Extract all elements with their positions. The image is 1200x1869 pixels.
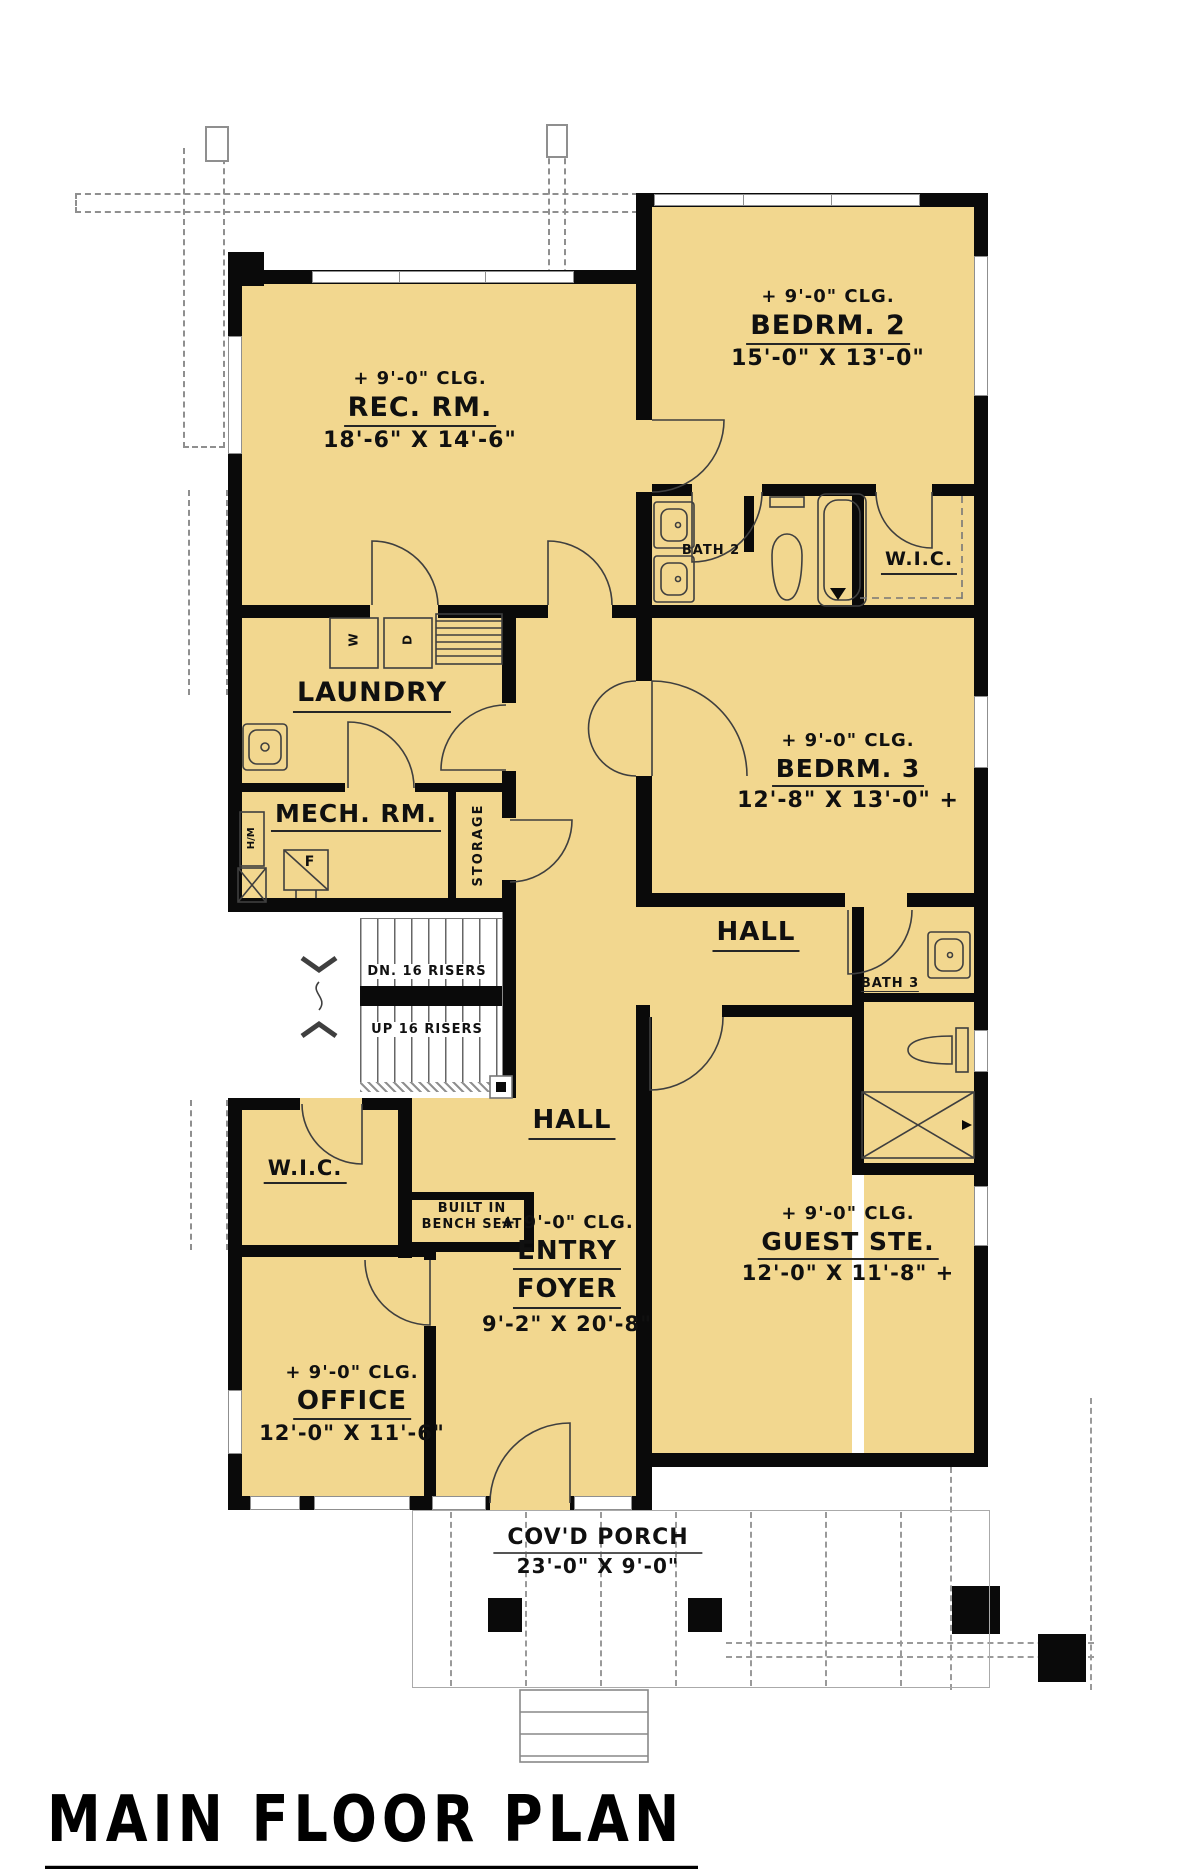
door-opening: [692, 484, 762, 496]
chimney-outline: [205, 126, 229, 162]
roof-dashed-strip: [190, 1100, 228, 1250]
wall-segment: [744, 490, 754, 552]
pergola-dashed-line: [1090, 1398, 1092, 1690]
roof-dashed-strip: [188, 490, 228, 695]
window: [485, 271, 574, 283]
porch-column-line: [900, 1512, 902, 1686]
stair-dn-label: DN. 16 RISERS: [364, 964, 489, 979]
wall-segment: [412, 1192, 534, 1200]
door-opening: [636, 681, 652, 776]
hm-label: H/M: [246, 827, 259, 849]
porch-column-line: [450, 1512, 452, 1686]
label-wic-left: W.I.C.: [264, 1155, 347, 1184]
window: [831, 194, 920, 206]
wall-segment: [636, 605, 988, 618]
window: [974, 256, 988, 396]
washer-label: W: [347, 632, 362, 646]
window: [312, 271, 400, 283]
window: [250, 1496, 300, 1510]
label-porch: COV'D PORCH 23'-0" X 9'-0": [493, 1524, 702, 1579]
wall-segment: [448, 792, 456, 898]
front-door-opening: [490, 1496, 570, 1510]
porch-column-line: [750, 1512, 752, 1686]
wall-segment: [228, 898, 516, 912]
porch-post: [1038, 1634, 1086, 1682]
window: [974, 1030, 988, 1072]
wall-segment: [852, 993, 988, 1002]
label-mech-rm: MECH. RM.: [271, 798, 441, 832]
label-bedrm3: + 9'-0" CLG. BEDRM. 3 12'-8" X 13'-0" +: [737, 730, 959, 814]
room-hall-center: [516, 905, 636, 1258]
window: [654, 194, 744, 206]
wall-segment: [502, 905, 516, 1098]
label-bedrm2: + 9'-0" CLG. BEDRM. 2 15'-0" X 13'-0": [731, 286, 925, 373]
window: [743, 194, 832, 206]
wall-segment: [636, 484, 988, 496]
wall-segment: [636, 893, 988, 907]
wall-segment: [852, 484, 864, 618]
furnace-label: F: [305, 854, 316, 872]
window: [399, 271, 486, 283]
door-opening: [502, 703, 516, 771]
window: [432, 1496, 486, 1510]
label-storage: STORAGE: [471, 804, 487, 887]
room-bath3: [864, 907, 974, 1163]
window: [228, 336, 242, 454]
stair-up-label: UP 16 RISERS: [368, 1022, 486, 1037]
label-entry-foyer: + 9'-0" CLG. ENTRY FOYER 9'-2" X 20'-8": [482, 1212, 652, 1337]
label-rec-rm: + 9'-0" CLG. REC. RM. 18'-6" X 14'-6": [323, 368, 517, 455]
porch-steps: [520, 1690, 648, 1762]
door-opening: [502, 818, 516, 880]
window: [574, 1496, 632, 1510]
door-opening: [424, 1260, 436, 1326]
wall-segment: [852, 905, 864, 1175]
label-laundry: LAUNDRY: [293, 676, 451, 713]
label-guest-ste: + 9'-0" CLG. GUEST STE. 12'-0" X 11'-8" …: [742, 1203, 955, 1286]
dryer-label: D: [401, 634, 416, 645]
window: [974, 1186, 988, 1246]
hall-opening: [636, 907, 652, 1005]
door-opening: [345, 783, 415, 792]
door-opening: [636, 420, 652, 492]
porch-column-line: [825, 1512, 827, 1686]
door-opening: [300, 1098, 362, 1110]
wall-segment: [398, 1098, 412, 1258]
label-bath2: BATH 2: [682, 543, 740, 559]
label-wic2: W.I.C.: [881, 548, 957, 575]
label-office: + 9'-0" CLG. OFFICE 12'-0" X 11'-6": [259, 1362, 445, 1446]
chimney-outline: [546, 124, 568, 158]
label-hall-center: HALL: [528, 1104, 615, 1140]
room-hall-center: [516, 618, 636, 905]
door-opening: [845, 893, 907, 907]
window: [314, 1496, 410, 1510]
wall-segment: [636, 193, 652, 618]
door-opening: [370, 605, 438, 618]
stair-hatch: [360, 1082, 502, 1092]
label-bath3: BATH 3: [861, 976, 919, 992]
wall-segment: [636, 1453, 988, 1467]
label-hall-upper: HALL: [712, 916, 799, 952]
page-title: MAIN FLOOR PLAN: [45, 1782, 698, 1869]
wall-segment: [852, 1163, 988, 1175]
door-opening: [650, 1005, 722, 1017]
window: [974, 696, 988, 768]
stair-mid-wall: [360, 986, 502, 1006]
door-opening: [876, 484, 932, 496]
window: [228, 1390, 242, 1454]
door-opening: [548, 605, 612, 618]
floor-plan: DN. 16 RISERS UP 16 RISERS: [0, 0, 1200, 1869]
